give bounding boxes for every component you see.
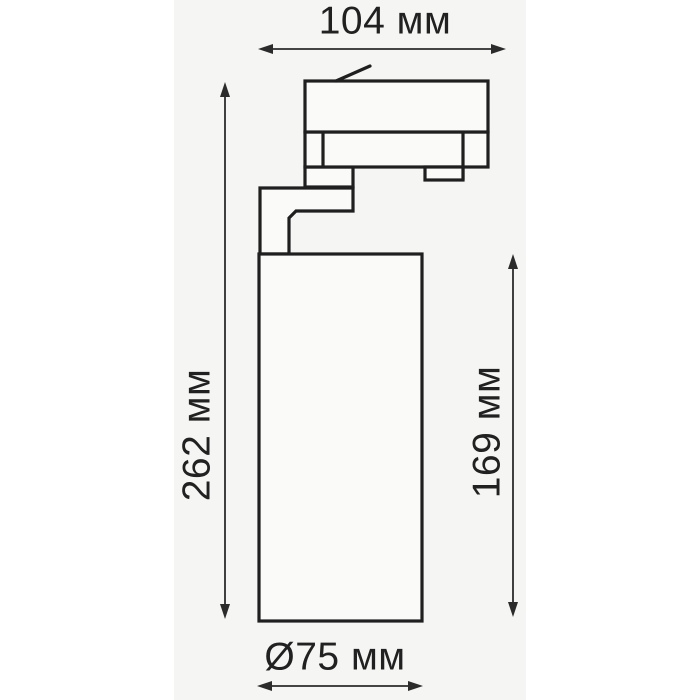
- locking-lever-icon: [336, 66, 370, 81]
- arrow-left-icon: [257, 681, 272, 691]
- dimension-drawing: 104 мм 262 мм 169 мм Ø75 мм: [0, 0, 700, 700]
- arrow-down-icon: [220, 604, 230, 619]
- arrow-up-icon: [220, 82, 230, 97]
- body-height-dimension-arrow: [508, 254, 518, 617]
- adapter-middle-section: [305, 132, 488, 167]
- arrow-up-icon: [508, 254, 518, 269]
- arrow-down-icon: [508, 602, 518, 617]
- total-height-dimension-arrow: [220, 82, 230, 619]
- diameter-dimension-arrow: [257, 681, 423, 691]
- arrow-right-icon: [408, 681, 423, 691]
- track-adapter: [305, 66, 488, 187]
- fixture-line-drawing: [0, 0, 700, 700]
- body-height-dimension-label: 169 мм: [468, 366, 507, 499]
- adapter-contact-tab: [425, 167, 463, 180]
- body-cylinder: [259, 254, 422, 621]
- arrow-left-icon: [258, 44, 273, 54]
- mounting-arm: [260, 188, 353, 254]
- adapter-top-housing: [305, 81, 488, 132]
- arrow-right-icon: [491, 44, 506, 54]
- lamp-body: [259, 188, 422, 621]
- width-dimension-arrow: [258, 44, 506, 54]
- diameter-dimension-label: Ø75 мм: [264, 638, 405, 677]
- adapter-left-block: [305, 167, 353, 187]
- width-dimension-label: 104 мм: [319, 2, 452, 41]
- total-height-dimension-label: 262 мм: [178, 369, 217, 502]
